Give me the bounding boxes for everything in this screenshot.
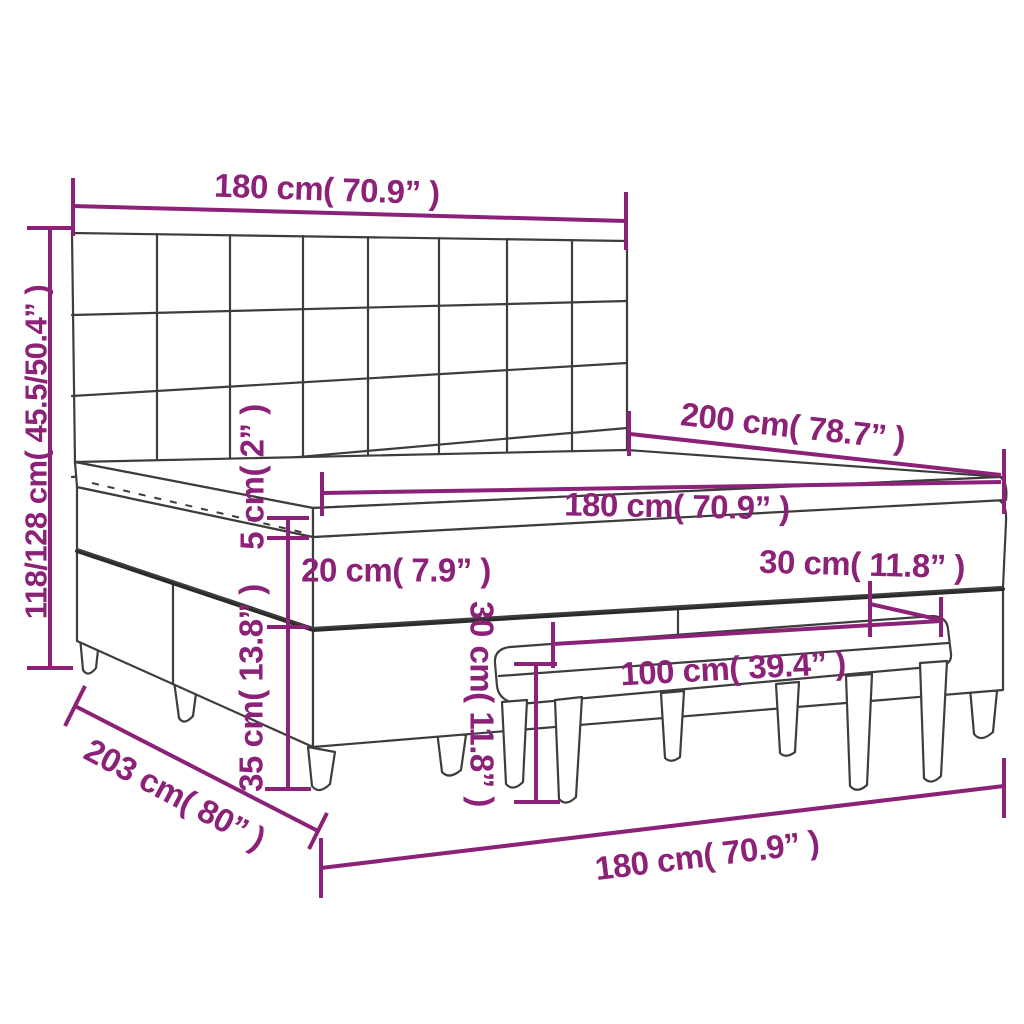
mattress-width-label: 180 cm( 70.9” ) bbox=[564, 486, 790, 527]
bench-leg bbox=[555, 697, 582, 803]
bench-leg bbox=[661, 691, 684, 761]
bench-leg bbox=[502, 700, 527, 788]
bench-height-label: 30 cm( 11.8” ) bbox=[464, 601, 501, 807]
base-height-label: 35 cm( 13.8” ) bbox=[233, 584, 270, 792]
total-height-label: 118/128 cm( 45.5/50.4” ) bbox=[19, 285, 54, 619]
bed-dimension-diagram: 180 cm( 70.9” ) 118/128 cm( 45.5/50.4” )… bbox=[0, 0, 1024, 1024]
topper-thickness-label: 5 cm( 2” ) bbox=[234, 404, 271, 549]
bench-depth-label: 30 cm( 11.8” ) bbox=[759, 543, 966, 585]
bed-leg bbox=[308, 747, 335, 790]
bed-leg bbox=[437, 731, 466, 776]
bed-leg bbox=[970, 688, 997, 738]
mattress-thickness-label: 20 cm( 7.9” ) bbox=[301, 552, 491, 589]
bench-leg bbox=[776, 682, 799, 756]
bed-length-label: 200 cm( 78.7” ) bbox=[679, 395, 907, 457]
bed-drawing bbox=[72, 233, 1006, 803]
bench-leg bbox=[846, 674, 872, 790]
headboard-outline bbox=[72, 233, 627, 464]
bed-diagram-svg: 180 cm( 70.9” ) 118/128 cm( 45.5/50.4” )… bbox=[0, 0, 1024, 1024]
bench-leg bbox=[920, 661, 947, 782]
headboard-width-label: 180 cm( 70.9” ) bbox=[214, 167, 441, 212]
